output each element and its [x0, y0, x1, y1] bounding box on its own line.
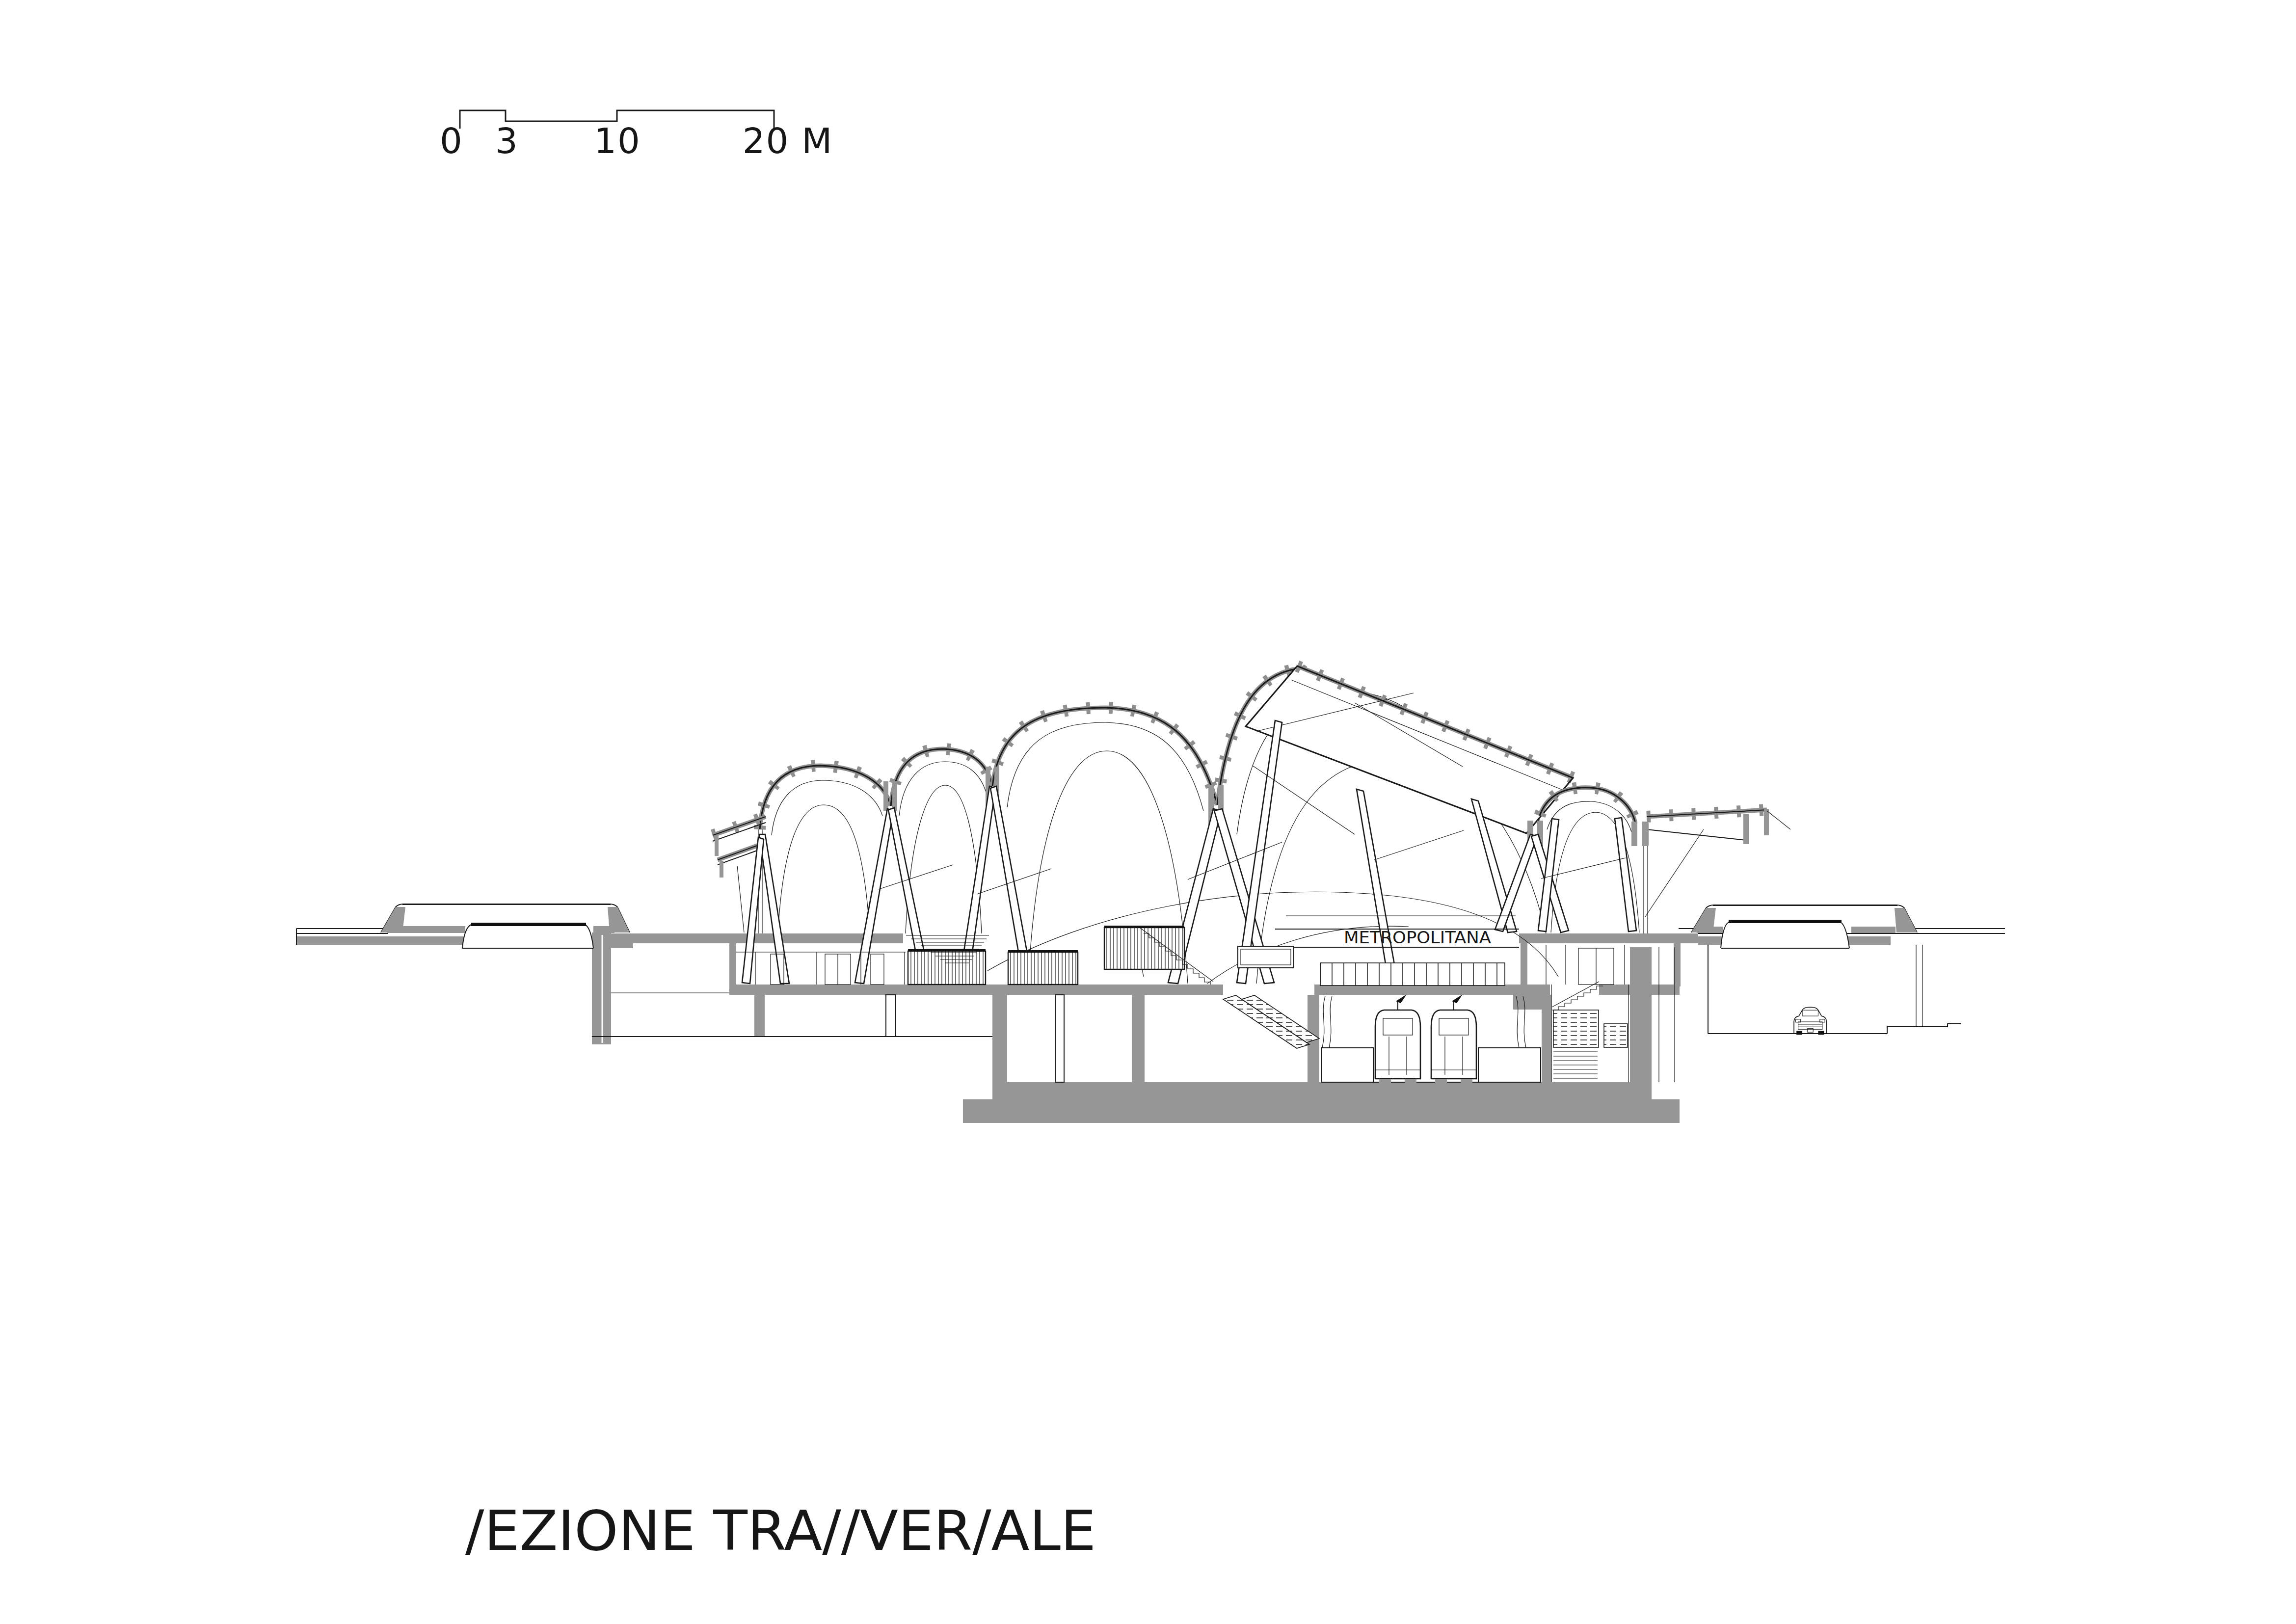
plaza-slab-left [611, 933, 903, 943]
shaft-right-wall [1630, 947, 1652, 1099]
vault-3 [992, 708, 1217, 811]
escalator-left [1223, 995, 1319, 1048]
deepbox-partition [1132, 995, 1145, 1082]
shaft-escalator-hatch [1553, 1010, 1599, 1047]
roof-wing-panel [1246, 666, 1573, 833]
scale-bar: 0 3 10 20 M [440, 110, 833, 161]
right-service-core [1659, 947, 1675, 1082]
foundation-pad [963, 1099, 1680, 1123]
car-grille [1798, 1022, 1822, 1029]
concourse-floor-center [1314, 985, 1550, 995]
car [1794, 1007, 1826, 1035]
drawing-title: /EZIONE TRA//VER/ALE [465, 1499, 1096, 1563]
basement-column [754, 995, 765, 1037]
louver-screen-3 [1104, 928, 1184, 969]
shaft-stair-upper [1552, 986, 1603, 1010]
scale-label-10: 10 [594, 120, 641, 161]
entrance-header [1519, 933, 1698, 943]
scale-label-20m: 20 M [743, 120, 833, 161]
scale-label-3: 3 [495, 120, 519, 161]
station-sign-metropolitana: METROPOLITANA [1344, 928, 1491, 947]
metro-train-left [1375, 994, 1420, 1085]
louver-screen-2 [1008, 952, 1078, 985]
section-drawing-canvas: 0 3 10 20 M [0, 0, 2296, 1624]
platform-left [1321, 1048, 1373, 1082]
track-screen [1320, 963, 1505, 985]
escalator-shaft-right [1551, 982, 1629, 1082]
underpass-step [1887, 1024, 1961, 1034]
car-plate [1807, 1029, 1813, 1033]
concourse-floor-left [729, 985, 1223, 995]
scale-label-0: 0 [440, 120, 463, 161]
vault-2 [891, 749, 992, 816]
drawing-sheet: 0 3 10 20 M [0, 0, 2296, 1624]
car-wheel-right [1818, 1031, 1824, 1035]
platform-right [1478, 1048, 1541, 1082]
underground-structure [296, 932, 1891, 1123]
platform-level [1223, 982, 1629, 1085]
car-wheel-left [1796, 1031, 1802, 1035]
metro-train-right [1431, 994, 1476, 1085]
skylight-right-lower [1721, 920, 1849, 948]
entrance-glazing [1546, 945, 1625, 985]
basement-column-3 [1055, 995, 1064, 1082]
shaft-escalator-hatch-2 [1604, 1024, 1628, 1047]
car-windshield [1802, 1010, 1818, 1016]
concourse-door-2 [871, 954, 884, 985]
entrance-post-left [1521, 943, 1527, 986]
canopy-right [1643, 809, 1790, 917]
skylight-left-lower [462, 923, 593, 948]
basement-column-2 [886, 995, 896, 1037]
deepbox-bottom-slab [992, 1082, 1652, 1099]
